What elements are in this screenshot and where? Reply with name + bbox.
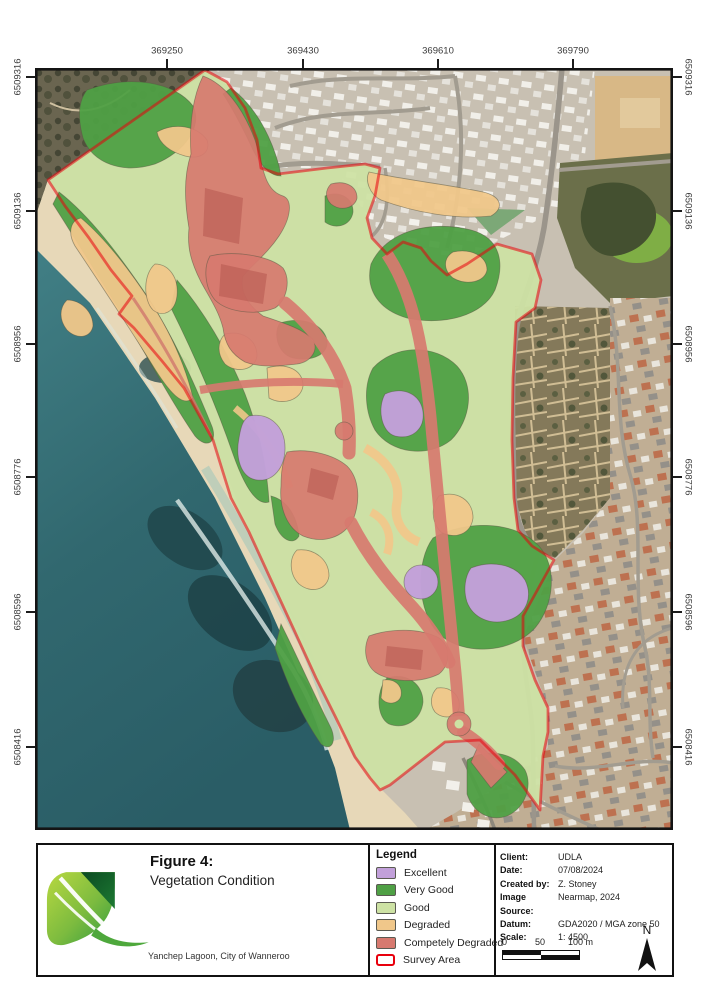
figure-project: Yanchep Lagoon, City of Wanneroo <box>148 951 290 961</box>
meta-label: Client: <box>500 851 558 864</box>
coord-label-top: 369430 <box>287 46 319 57</box>
axis-tick <box>166 59 168 68</box>
axis-tick <box>26 76 35 78</box>
axis-tick <box>673 210 682 212</box>
coord-label-right: 6508956 <box>683 326 694 363</box>
figure-title: Vegetation Condition <box>150 873 275 888</box>
coord-label-top: 369250 <box>151 46 183 57</box>
coord-label-right: 6509316 <box>683 59 694 96</box>
coord-label-right: 6509136 <box>683 193 694 230</box>
meta-label: Created by: <box>500 878 558 891</box>
axis-tick <box>673 611 682 613</box>
scale-bar: 0 50 100 m <box>502 937 622 960</box>
north-arrow: N <box>632 923 662 978</box>
axis-tick <box>673 343 682 345</box>
north-arrow-icon <box>634 937 660 973</box>
axis-tick <box>572 59 574 68</box>
scale-tick-label: 100 m <box>568 937 593 947</box>
axis-tick <box>673 76 682 78</box>
meta-label: Image Source: <box>500 891 558 918</box>
legend-item-label: Excellent <box>404 867 447 879</box>
meta-row: Created by: Z. Stoney <box>500 878 670 891</box>
legend-item-label: Competely Degraded <box>404 937 503 949</box>
scale-bar-cell <box>541 955 579 959</box>
coord-label-right: 6508416 <box>683 729 694 766</box>
north-label: N <box>632 923 662 937</box>
coord-label-top: 369610 <box>422 46 454 57</box>
paddock-patch <box>620 98 660 128</box>
axis-tick <box>26 611 35 613</box>
very-good-swatch <box>376 884 396 896</box>
axis-tick <box>437 59 439 68</box>
legend-item-label: Degraded <box>404 919 450 931</box>
axis-tick <box>302 59 304 68</box>
meta-value: 07/08/2024 <box>558 864 603 877</box>
coord-label-left: 6509136 <box>13 193 24 230</box>
axis-tick <box>26 343 35 345</box>
axis-tick <box>26 210 35 212</box>
excellent-swatch <box>376 867 396 879</box>
meta-row: Client: UDLA <box>500 851 670 864</box>
coord-label-left: 6509316 <box>13 59 24 96</box>
meta-value: Nearmap, 2024 <box>558 891 620 918</box>
axis-tick <box>26 746 35 748</box>
meta-row: Image Source: Nearmap, 2024 <box>500 891 670 918</box>
figure-number: Figure 4: <box>150 853 213 870</box>
survey-area-swatch <box>376 954 395 966</box>
legend-item-label: Good <box>404 902 430 914</box>
divider <box>368 845 370 975</box>
meta-label: Datum: <box>500 918 558 931</box>
scale-tick-label: 0 <box>502 937 507 947</box>
meta-label: Date: <box>500 864 558 877</box>
udla-logo <box>44 850 162 968</box>
coord-label-right: 6508596 <box>683 594 694 631</box>
title-block: Figure 4: Vegetation Condition Yanchep L… <box>36 843 674 977</box>
coord-label-left: 6508776 <box>13 459 24 496</box>
axis-tick <box>673 476 682 478</box>
meta-row: Date: 07/08/2024 <box>500 864 670 877</box>
coord-label-right: 6508776 <box>683 459 694 496</box>
map-canvas <box>35 68 673 830</box>
coord-label-left: 6508416 <box>13 729 24 766</box>
legend-item-label: Very Good <box>404 884 454 896</box>
meta-value: Z. Stoney <box>558 878 597 891</box>
axis-tick <box>673 746 682 748</box>
coord-label-top: 369790 <box>557 46 589 57</box>
roundabout-island <box>455 720 464 729</box>
scale-bar-cell <box>503 955 541 959</box>
coord-label-left: 6508956 <box>13 326 24 363</box>
scale-tick-label: 50 <box>535 937 545 947</box>
good-swatch <box>376 902 396 914</box>
completely-degraded-swatch <box>376 937 396 949</box>
aerial-map <box>35 68 673 830</box>
axis-tick <box>26 476 35 478</box>
figure-page: { "figure": { "label": "Figure 4:", "tit… <box>0 0 705 997</box>
legend-item-label: Survey Area <box>403 954 460 966</box>
coord-label-left: 6508596 <box>13 594 24 631</box>
meta-value: UDLA <box>558 851 582 864</box>
scale-bar-graphic <box>502 950 580 960</box>
degraded-swatch <box>376 919 396 931</box>
